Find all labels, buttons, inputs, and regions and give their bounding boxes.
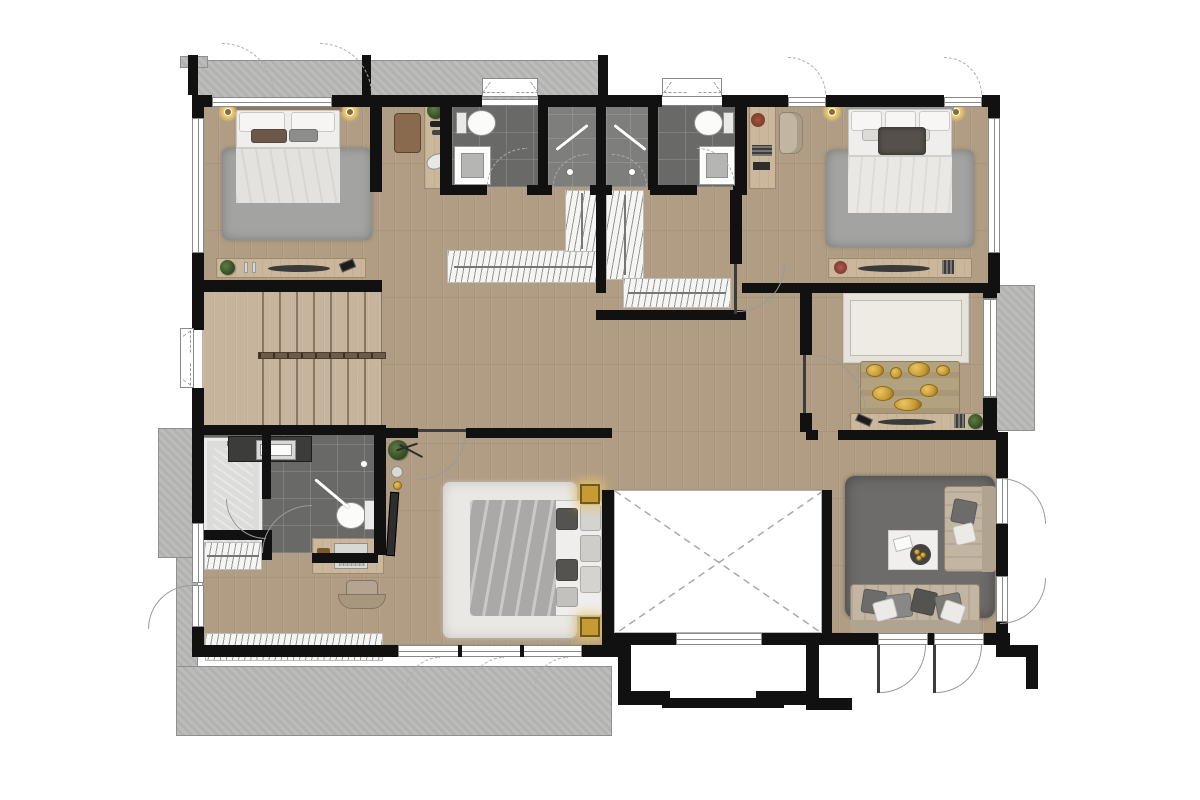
stairs-handrail <box>258 352 386 359</box>
toilet-3-bowl <box>336 502 366 529</box>
figurines <box>244 262 248 273</box>
bedroom-1-bed <box>233 103 343 203</box>
wall <box>374 425 386 555</box>
window <box>988 118 1000 253</box>
door-swing <box>1000 478 1046 524</box>
louver-window <box>180 328 194 388</box>
bed-1-duvet <box>236 147 340 203</box>
wall <box>440 185 487 195</box>
sofa-main <box>850 584 980 634</box>
wall <box>382 428 418 438</box>
window-triple <box>398 645 582 657</box>
toilet-1-bowl <box>467 110 496 136</box>
balcony-right <box>993 285 1035 431</box>
wall <box>722 95 788 107</box>
round-tray <box>391 466 403 478</box>
void-double-height <box>614 490 822 633</box>
bed-2-duvet <box>848 155 952 213</box>
fruit <box>916 555 922 561</box>
terrace-window-swing <box>534 657 568 691</box>
balcony-door-swing <box>320 43 372 95</box>
door-leaf <box>192 585 204 627</box>
door-leaf <box>944 97 982 107</box>
book-stack <box>752 145 772 156</box>
wall <box>830 633 878 645</box>
bathtub-ledge <box>158 428 194 558</box>
wall <box>440 100 452 195</box>
floor-plan <box>0 0 1200 800</box>
door-leaf-line <box>803 355 806 413</box>
wall <box>838 430 998 440</box>
wall <box>982 95 1000 107</box>
master-bed-pillow <box>580 566 601 593</box>
door-opening <box>934 633 984 645</box>
wall <box>192 388 204 523</box>
wall <box>527 185 552 195</box>
master-bed-pillow <box>580 504 601 531</box>
vanity-stool <box>394 113 421 153</box>
door-swing <box>788 57 826 95</box>
book-stack <box>954 414 965 428</box>
balcony-post <box>188 55 198 95</box>
door-leaf <box>788 97 826 107</box>
terrace-window-swing <box>470 657 504 691</box>
louver-mark <box>183 330 191 358</box>
gold-bowl <box>393 481 402 490</box>
book-stack <box>942 260 954 274</box>
louver-mark <box>663 82 694 93</box>
toilet-1-tank <box>456 112 467 134</box>
door-swing <box>944 57 982 95</box>
toilet-2-tank <box>723 112 734 134</box>
plant-icon <box>220 260 235 275</box>
window <box>212 97 332 107</box>
stairs-lower-flight <box>262 359 382 428</box>
office-chair <box>336 578 388 612</box>
wall <box>596 102 606 190</box>
bed-2-pillow <box>851 111 882 131</box>
wardrobe-run <box>447 250 599 283</box>
louver-mark <box>183 358 191 386</box>
console-dish <box>878 419 936 425</box>
terrace-window-swing <box>406 657 440 691</box>
bed-1-accent-pillow <box>251 129 287 143</box>
wardrobe-run <box>565 190 599 252</box>
sliding-door <box>983 298 997 398</box>
plant-icon <box>968 414 983 429</box>
wall <box>596 310 746 320</box>
wall <box>730 314 742 320</box>
master-bed-pillow <box>556 559 578 581</box>
ceiling-spotlight <box>580 617 600 637</box>
wall <box>762 633 834 645</box>
window <box>192 523 204 583</box>
gold-offering <box>936 365 950 376</box>
parapet-step <box>806 645 819 703</box>
wall <box>192 280 382 292</box>
gold-offering <box>894 398 922 411</box>
wall <box>192 107 204 118</box>
louver-window <box>662 78 722 97</box>
wall <box>602 490 614 645</box>
terrace-door-swing <box>148 585 192 629</box>
dresser-tray <box>268 265 330 272</box>
wall <box>988 107 1000 118</box>
wall <box>370 100 382 192</box>
letter-decor <box>753 162 770 170</box>
window <box>192 118 204 253</box>
wall <box>735 102 747 190</box>
wall <box>826 95 944 107</box>
wall <box>192 425 382 435</box>
louver-mark <box>691 82 722 93</box>
wall <box>192 645 398 657</box>
wall <box>996 524 1008 576</box>
wardrobe-run <box>606 190 644 280</box>
wall <box>538 102 548 190</box>
console-sculpture <box>858 265 930 272</box>
door-opening <box>878 633 928 645</box>
wall <box>596 190 606 293</box>
balcony-post <box>598 55 608 95</box>
gold-offering <box>920 384 938 397</box>
bed-1-accent-pillow <box>289 129 318 142</box>
wall <box>192 95 212 107</box>
wardrobe-run <box>623 278 731 308</box>
wardrobe-run <box>204 542 262 570</box>
master-bed-pillow <box>580 535 601 562</box>
door-swing <box>880 645 926 693</box>
master-bed-duvet <box>470 500 556 616</box>
hall-over-void-floor <box>602 432 832 490</box>
wall <box>800 283 812 355</box>
sofa-side <box>944 486 996 572</box>
void-x-marks <box>615 491 823 634</box>
louver-mark <box>482 82 512 93</box>
figurines <box>252 262 256 273</box>
master-bed-pillow <box>556 587 578 607</box>
parapet-step <box>1026 653 1038 689</box>
window-mullion <box>458 645 462 657</box>
gold-offering <box>872 386 894 401</box>
sofa-pillow <box>950 498 978 526</box>
door-swing <box>1000 578 1046 624</box>
window-mullion <box>520 645 524 657</box>
prayer-rug <box>843 293 969 363</box>
louver-window <box>482 78 538 97</box>
void-window <box>676 633 762 645</box>
bed-2-throw <box>878 127 926 155</box>
flower-vase <box>751 113 765 127</box>
master-bed <box>468 497 609 619</box>
bedroom-2-bed <box>846 103 954 213</box>
wall <box>312 553 378 563</box>
wall <box>984 633 1010 645</box>
parapet-step <box>806 698 852 710</box>
stairs-upper-flight <box>262 289 382 352</box>
wall <box>262 435 271 499</box>
wall <box>332 95 482 107</box>
wall <box>648 102 658 190</box>
gold-offering <box>890 367 902 379</box>
wall <box>730 190 742 264</box>
chair-back <box>338 594 386 609</box>
wall <box>822 490 832 633</box>
flower-vase <box>834 261 847 274</box>
balcony-door-swing <box>222 43 274 95</box>
wall <box>582 645 622 657</box>
master-bed-pillow <box>556 508 578 530</box>
armchair <box>779 112 803 154</box>
toilet-2-bowl <box>694 110 723 136</box>
shower-tray-1 <box>455 147 490 184</box>
sofa-side-back <box>982 486 996 572</box>
wall <box>466 428 612 438</box>
ceiling-spotlight <box>580 484 600 504</box>
shower-head-3 <box>360 460 368 468</box>
wall <box>983 398 997 432</box>
louver-mark <box>509 82 539 93</box>
gold-offering <box>866 364 884 377</box>
wall <box>650 185 697 195</box>
wall <box>806 430 818 440</box>
door-swing <box>936 645 982 693</box>
gold-offering <box>908 362 930 377</box>
